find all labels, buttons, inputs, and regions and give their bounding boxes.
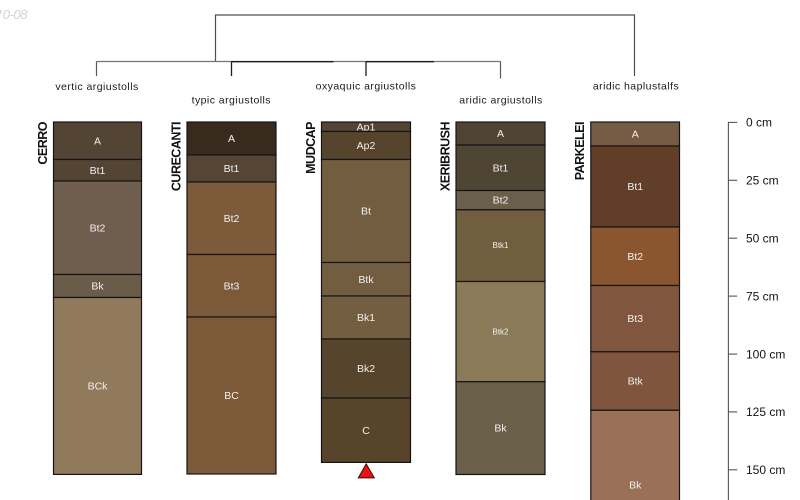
svg-text:A: A (94, 135, 101, 147)
svg-text:125 cm: 125 cm (746, 405, 785, 419)
svg-text:Btk: Btk (628, 376, 644, 388)
svg-text:Bt2: Bt2 (90, 222, 106, 234)
svg-text:oxyaquic argiustolls: oxyaquic argiustolls (316, 81, 417, 93)
svg-text:Bt3: Bt3 (627, 313, 643, 325)
svg-text:Bk1: Bk1 (357, 312, 375, 324)
svg-text:A: A (228, 133, 235, 145)
svg-text:Bt2: Bt2 (627, 251, 643, 263)
svg-text:Bt1: Bt1 (224, 163, 240, 175)
svg-text:Bt1: Bt1 (90, 165, 106, 177)
svg-text:Bt3: Bt3 (224, 280, 240, 292)
svg-text:A: A (497, 128, 504, 140)
svg-text:typic argiustolls: typic argiustolls (192, 95, 271, 107)
svg-text:PARKELEI: PARKELEI (573, 122, 587, 180)
svg-text:vertic argiustolls: vertic argiustolls (55, 81, 138, 93)
svg-text:CURECANTI: CURECANTI (170, 122, 184, 191)
svg-text:0 cm: 0 cm (746, 116, 772, 130)
svg-text:Bk: Bk (91, 281, 104, 293)
svg-text:Ap2: Ap2 (357, 140, 376, 152)
svg-text:Bk: Bk (494, 423, 507, 435)
svg-text:aridic haplustalfs: aridic haplustalfs (593, 81, 679, 93)
svg-text:Bt: Bt (361, 206, 371, 218)
svg-text:150 cm: 150 cm (746, 463, 785, 477)
svg-text:aridic argiustolls: aridic argiustolls (459, 95, 542, 107)
svg-text:XERIBRUSH: XERIBRUSH (439, 122, 453, 192)
svg-text:Bt2: Bt2 (493, 194, 509, 206)
svg-text:A: A (632, 129, 639, 141)
svg-text:Bt1: Bt1 (493, 162, 509, 174)
svg-text:Btk2: Btk2 (492, 328, 509, 337)
svg-text:BCk: BCk (88, 381, 109, 393)
svg-text:25 cm: 25 cm (746, 174, 779, 188)
svg-text:Btk1: Btk1 (492, 241, 509, 250)
svg-text:MUDCAP: MUDCAP (304, 122, 318, 174)
svg-text:Btk: Btk (358, 274, 374, 286)
svg-text:0-08: 0-08 (3, 7, 28, 22)
svg-text:Bk2: Bk2 (357, 363, 375, 375)
svg-text:50 cm: 50 cm (746, 232, 779, 246)
svg-text:Bt2: Bt2 (224, 213, 240, 225)
svg-text:75 cm: 75 cm (746, 289, 779, 303)
svg-text:CERRO: CERRO (36, 121, 50, 164)
svg-text:Bt1: Bt1 (627, 181, 643, 193)
svg-text:C: C (362, 425, 370, 437)
svg-text:Bk: Bk (629, 479, 642, 491)
svg-text:100 cm: 100 cm (746, 347, 785, 361)
svg-text:BC: BC (224, 390, 239, 402)
